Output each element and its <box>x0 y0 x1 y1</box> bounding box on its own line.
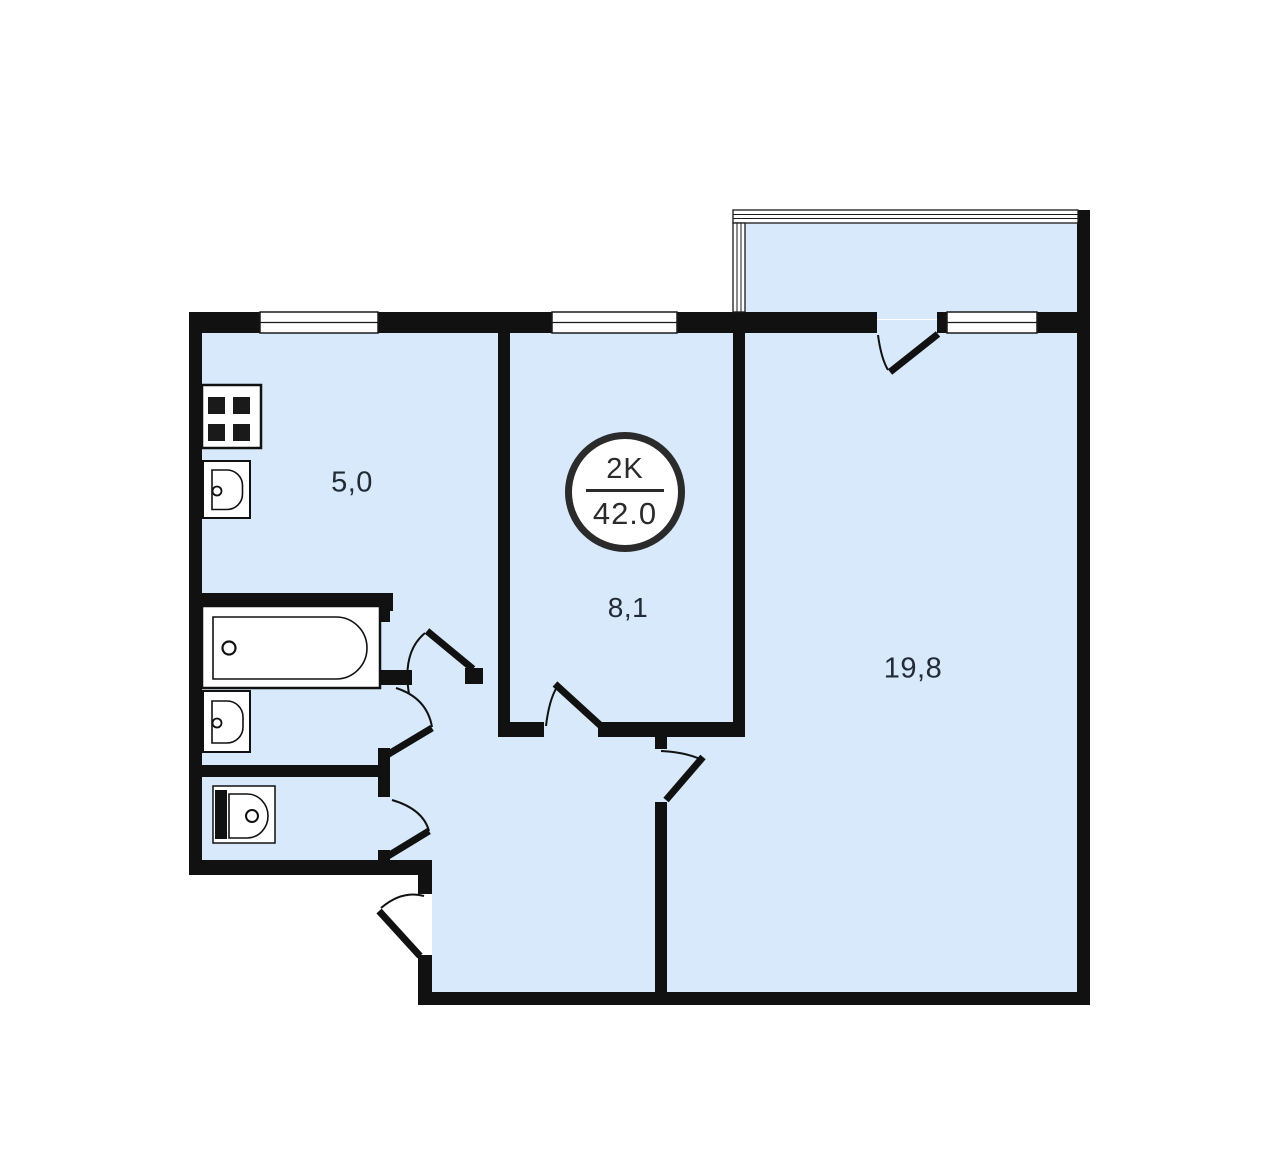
wall <box>498 333 510 737</box>
wash-basin-icon <box>203 691 250 752</box>
wall <box>378 777 390 797</box>
toilet-icon <box>213 786 275 843</box>
area-badge: 2K 42.0 <box>565 432 685 552</box>
wall <box>189 765 390 777</box>
wall <box>1077 210 1090 1005</box>
floor-plan: 5,0 8,1 19,8 2K 42.0 <box>0 0 1279 1175</box>
floor-plan-drawing <box>0 0 1279 1175</box>
balcony-glazing-left <box>733 223 745 312</box>
room-label-room-19-8: 19,8 <box>884 653 942 686</box>
wall <box>189 860 432 875</box>
wall <box>655 802 667 993</box>
balcony-floor <box>739 216 1084 319</box>
stove-icon <box>202 385 261 448</box>
room-label-room-8-1: 8,1 <box>608 592 648 624</box>
window-kitchen <box>260 312 378 333</box>
wall <box>598 722 745 737</box>
wall <box>418 954 432 993</box>
bathtub-icon <box>202 606 380 688</box>
wall <box>498 722 544 737</box>
badge-divider <box>586 489 664 492</box>
wall <box>418 875 432 896</box>
window-room-8-1 <box>552 312 677 333</box>
wall <box>733 333 745 724</box>
wall <box>655 737 667 749</box>
wall <box>677 312 877 333</box>
wall <box>937 312 947 333</box>
badge-rooms-count: 2K <box>606 455 643 484</box>
wall <box>378 312 552 333</box>
balcony-glazing-top <box>733 210 1078 223</box>
kitchen-sink-icon <box>203 461 250 518</box>
room-label-kitchen: 5,0 <box>331 467 373 500</box>
wall <box>465 668 483 684</box>
wall <box>418 992 1090 1005</box>
badge-total-area: 42.0 <box>593 498 657 529</box>
window-room-19-8 <box>947 312 1037 333</box>
